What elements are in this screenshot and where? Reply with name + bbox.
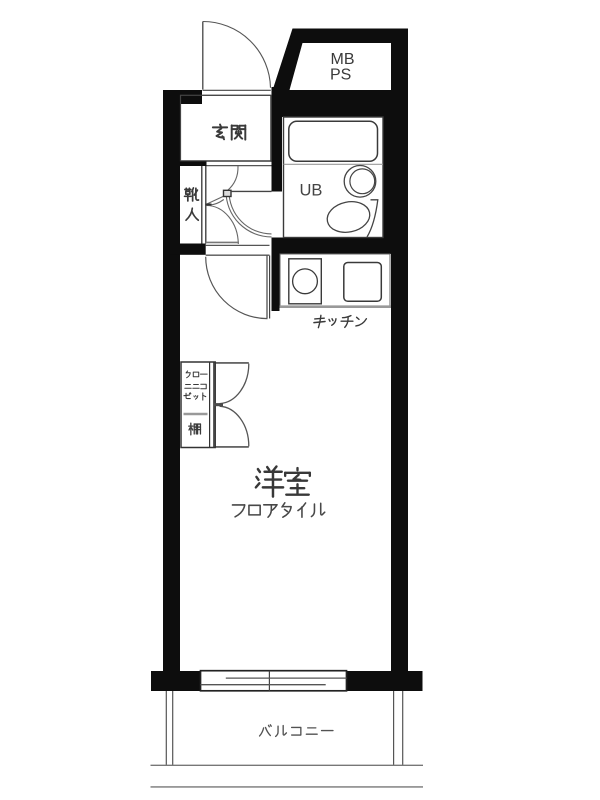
svg-text:MB: MB bbox=[331, 51, 355, 68]
svg-text:UB: UB bbox=[300, 182, 323, 200]
svg-text:PS: PS bbox=[330, 67, 351, 84]
